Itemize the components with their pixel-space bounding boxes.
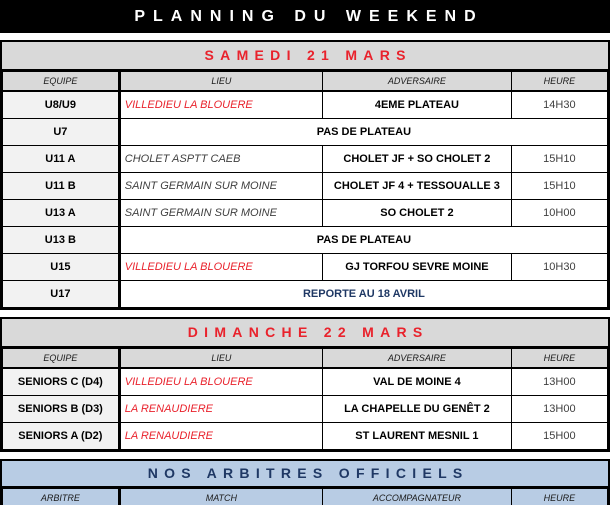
equipe-cell: SENIORS B (D3) — [3, 396, 120, 423]
col-header-heure: HEURE — [511, 489, 607, 505]
note-cell: REPORTE AU 18 AVRIL — [119, 281, 607, 308]
equipe-cell: U8/U9 — [3, 91, 120, 119]
lieu-cell: VILLEDIEU LA BLOUERE — [119, 91, 322, 119]
equipe-cell: SENIORS C (D4) — [3, 368, 120, 396]
adversaire-cell: SO CHOLET 2 — [323, 200, 512, 227]
equipe-cell: U15 — [3, 254, 120, 281]
samedi-section: SAMEDI 21 MARS EQUIPE LIEU ADVERSAIRE HE… — [0, 40, 610, 310]
col-header-lieu: LIEU — [119, 72, 322, 92]
equipe-cell: SENIORS A (D2) — [3, 423, 120, 450]
lieu-cell: SAINT GERMAIN SUR MOINE — [119, 173, 322, 200]
col-header-adversaire: ADVERSAIRE — [323, 349, 512, 369]
equipe-cell: U13 B — [3, 227, 120, 254]
table-row-u8u9: U8/U9 VILLEDIEU LA BLOUERE 4EME PLATEAU … — [3, 91, 608, 119]
note-cell: PAS DE PLATEAU — [119, 227, 607, 254]
table-row-u11a: U11 A CHOLET ASPTT CAEB CHOLET JF + SO C… — [3, 146, 608, 173]
equipe-cell: U11 B — [3, 173, 120, 200]
col-header-equipe: EQUIPE — [3, 349, 120, 369]
table-row-seniors-a: SENIORS A (D2) LA RENAUDIERE ST LAURENT … — [3, 423, 608, 450]
arbitres-column-header-row: ARBITRE MATCH ACCOMPAGNATEUR HEURE — [3, 489, 608, 505]
arbitres-header: NOS ARBITRES OFFICIELS — [2, 461, 608, 488]
arbitres-table: ARBITRE MATCH ACCOMPAGNATEUR HEURE V. GI… — [2, 488, 608, 505]
samedi-table: EQUIPE LIEU ADVERSAIRE HEURE U8/U9 VILLE… — [2, 71, 608, 308]
col-header-heure: HEURE — [511, 349, 607, 369]
dimanche-day-header: DIMANCHE 22 MARS — [2, 319, 608, 348]
dimanche-table: EQUIPE LIEU ADVERSAIRE HEURE SENIORS C (… — [2, 348, 608, 450]
table-row-seniors-b: SENIORS B (D3) LA RENAUDIERE LA CHAPELLE… — [3, 396, 608, 423]
heure-cell: 13H00 — [511, 368, 607, 396]
lieu-cell: CHOLET ASPTT CAEB — [119, 146, 322, 173]
lieu-cell: VILLEDIEU LA BLOUERE — [119, 254, 322, 281]
lieu-cell: LA RENAUDIERE — [119, 423, 322, 450]
equipe-cell: U13 A — [3, 200, 120, 227]
table-row-u11b: U11 B SAINT GERMAIN SUR MOINE CHOLET JF … — [3, 173, 608, 200]
adversaire-cell: 4EME PLATEAU — [323, 91, 512, 119]
equipe-cell: U11 A — [3, 146, 120, 173]
col-header-accompagnateur: ACCOMPAGNATEUR — [323, 489, 512, 505]
heure-cell: 15H10 — [511, 146, 607, 173]
col-header-equipe: EQUIPE — [3, 72, 120, 92]
heure-cell: 10H30 — [511, 254, 607, 281]
table-row-u13a: U13 A SAINT GERMAIN SUR MOINE SO CHOLET … — [3, 200, 608, 227]
equipe-cell: U17 — [3, 281, 120, 308]
col-header-match: MATCH — [119, 489, 322, 505]
heure-cell: 13H00 — [511, 396, 607, 423]
dimanche-column-header-row: EQUIPE LIEU ADVERSAIRE HEURE — [3, 349, 608, 369]
arbitres-section: NOS ARBITRES OFFICIELS ARBITRE MATCH ACC… — [0, 459, 610, 505]
adversaire-cell: LA CHAPELLE DU GENÊT 2 — [323, 396, 512, 423]
adversaire-cell: VAL DE MOINE 4 — [323, 368, 512, 396]
heure-cell: 15H00 — [511, 423, 607, 450]
equipe-cell: U7 — [3, 119, 120, 146]
samedi-column-header-row: EQUIPE LIEU ADVERSAIRE HEURE — [3, 72, 608, 92]
adversaire-cell: CHOLET JF 4 + TESSOUALLE 3 — [323, 173, 512, 200]
heure-cell: 15H10 — [511, 173, 607, 200]
table-row-u15: U15 VILLEDIEU LA BLOUERE GJ TORFOU SEVRE… — [3, 254, 608, 281]
lieu-cell: LA RENAUDIERE — [119, 396, 322, 423]
table-row-u13b: U13 B PAS DE PLATEAU — [3, 227, 608, 254]
lieu-cell: VILLEDIEU LA BLOUERE — [119, 368, 322, 396]
adversaire-cell: GJ TORFOU SEVRE MOINE — [323, 254, 512, 281]
col-header-adversaire: ADVERSAIRE — [323, 72, 512, 92]
table-row-seniors-c: SENIORS C (D4) VILLEDIEU LA BLOUERE VAL … — [3, 368, 608, 396]
table-row-u17: U17 REPORTE AU 18 AVRIL — [3, 281, 608, 308]
adversaire-cell: ST LAURENT MESNIL 1 — [323, 423, 512, 450]
samedi-day-header: SAMEDI 21 MARS — [2, 42, 608, 71]
col-header-lieu: LIEU — [119, 349, 322, 369]
adversaire-cell: CHOLET JF + SO CHOLET 2 — [323, 146, 512, 173]
dimanche-section: DIMANCHE 22 MARS EQUIPE LIEU ADVERSAIRE … — [0, 317, 610, 452]
col-header-arbitre: ARBITRE — [3, 489, 120, 505]
table-row-u7: U7 PAS DE PLATEAU — [3, 119, 608, 146]
heure-cell: 10H00 — [511, 200, 607, 227]
page-title: PLANNING DU WEEKEND — [0, 0, 610, 33]
heure-cell: 14H30 — [511, 91, 607, 119]
lieu-cell: SAINT GERMAIN SUR MOINE — [119, 200, 322, 227]
note-cell: PAS DE PLATEAU — [119, 119, 607, 146]
planning-page: PLANNING DU WEEKEND SAMEDI 21 MARS EQUIP… — [0, 0, 610, 505]
col-header-heure: HEURE — [511, 72, 607, 92]
